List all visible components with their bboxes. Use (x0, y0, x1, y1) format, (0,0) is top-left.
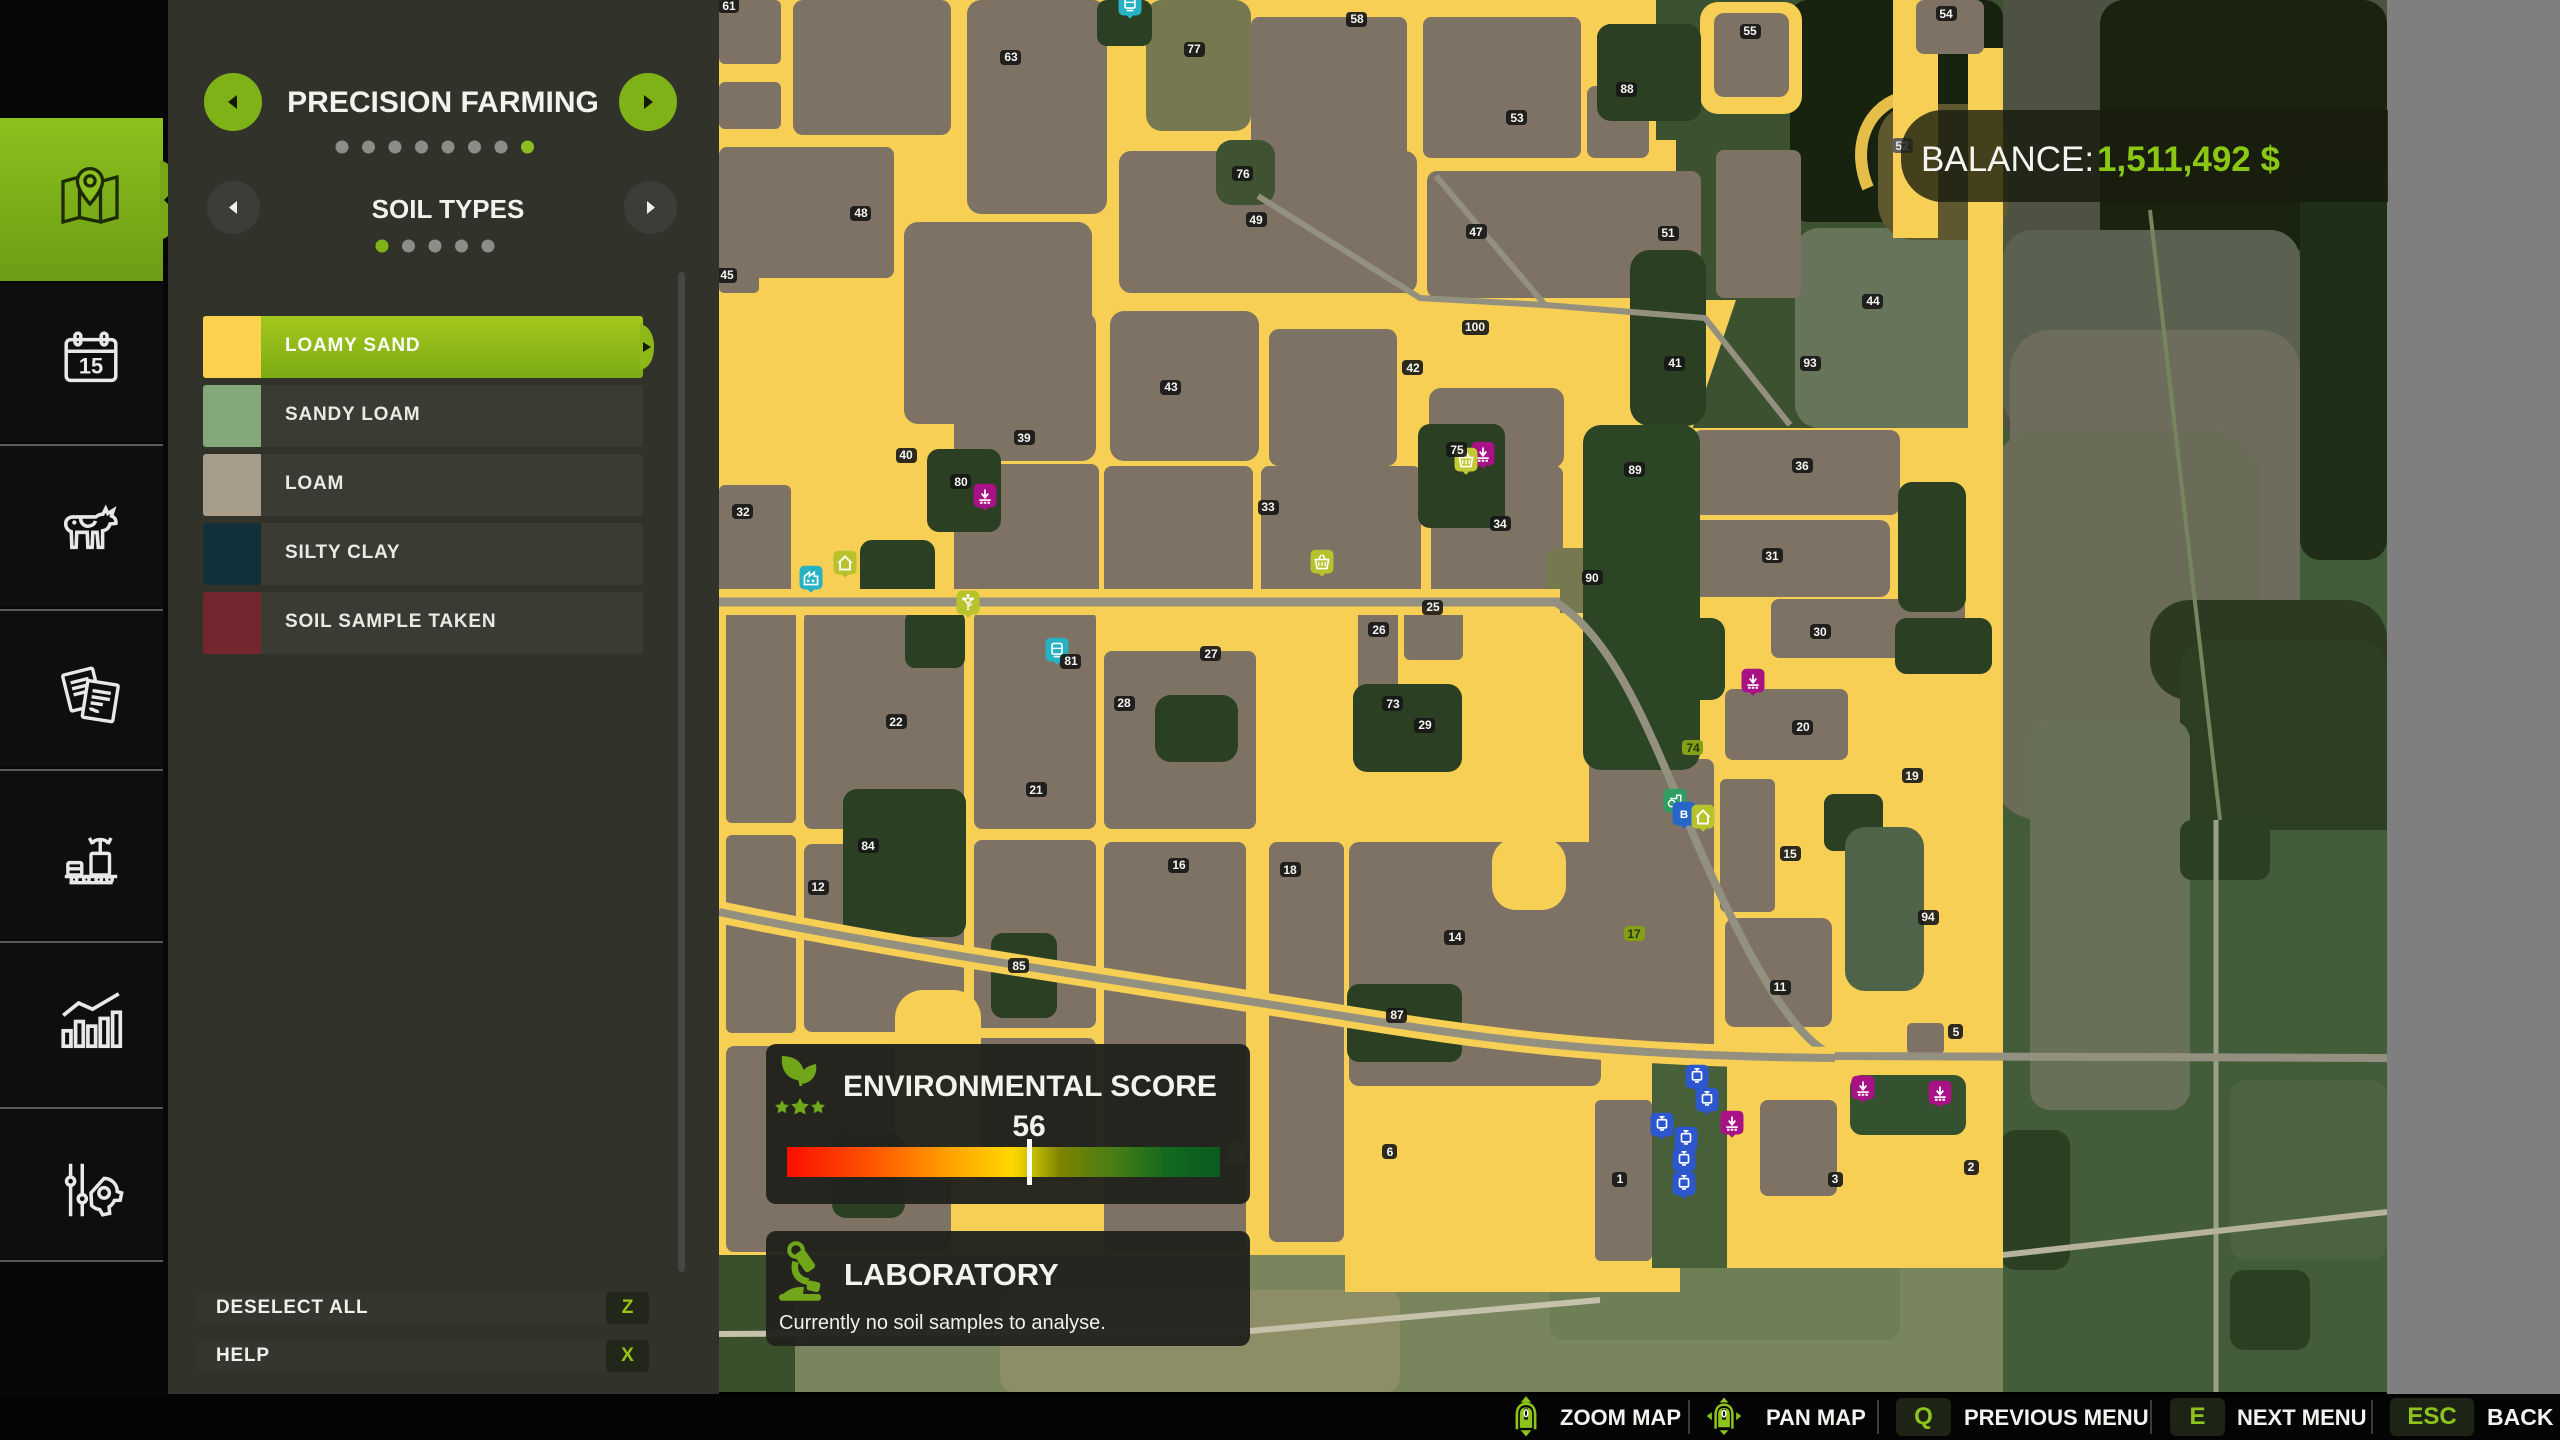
svg-text:22: 22 (889, 715, 903, 729)
svg-text:31: 31 (1765, 549, 1779, 563)
svg-text:26: 26 (1372, 623, 1386, 637)
svg-text:48: 48 (854, 206, 868, 220)
svg-text:45: 45 (720, 268, 734, 282)
svg-text:20: 20 (1796, 720, 1810, 734)
svg-text:39: 39 (1017, 431, 1031, 445)
svg-text:25: 25 (1426, 600, 1440, 614)
svg-text:84: 84 (861, 839, 875, 853)
svg-text:93: 93 (1803, 356, 1817, 370)
svg-text:61: 61 (722, 0, 736, 13)
svg-text:88: 88 (1620, 82, 1634, 96)
svg-text:81: 81 (1064, 654, 1078, 668)
svg-text:34: 34 (1493, 517, 1507, 531)
svg-text:28: 28 (1117, 696, 1131, 710)
svg-text:15: 15 (79, 353, 103, 378)
svg-text:32: 32 (736, 505, 750, 519)
svg-text:3: 3 (1832, 1172, 1839, 1186)
svg-text:47: 47 (1469, 225, 1483, 239)
svg-text:16: 16 (1172, 858, 1186, 872)
svg-text:94: 94 (1921, 910, 1935, 924)
svg-text:6: 6 (1387, 1145, 1394, 1159)
svg-text:18: 18 (1283, 863, 1297, 877)
svg-text:30: 30 (1813, 625, 1827, 639)
svg-text:33: 33 (1261, 500, 1275, 514)
svg-text:80: 80 (954, 475, 968, 489)
svg-text:53: 53 (1510, 111, 1524, 125)
svg-text:63: 63 (1004, 50, 1018, 64)
svg-text:54: 54 (1939, 7, 1953, 21)
svg-text:19: 19 (1905, 769, 1919, 783)
svg-text:17: 17 (1627, 927, 1641, 941)
svg-text:55: 55 (1743, 24, 1757, 38)
svg-text:43: 43 (1164, 380, 1178, 394)
svg-text:58: 58 (1350, 12, 1364, 26)
svg-text:74: 74 (1686, 741, 1700, 755)
svg-text:2: 2 (1968, 1160, 1975, 1174)
svg-text:87: 87 (1390, 1008, 1404, 1022)
svg-text:5: 5 (1953, 1025, 1960, 1039)
svg-text:89: 89 (1628, 463, 1642, 477)
svg-text:11: 11 (1774, 980, 1787, 994)
svg-text:41: 41 (1668, 356, 1682, 370)
svg-text:49: 49 (1249, 213, 1263, 227)
svg-text:29: 29 (1418, 718, 1432, 732)
svg-text:21: 21 (1029, 783, 1043, 797)
svg-text:85: 85 (1012, 959, 1026, 973)
svg-text:42: 42 (1406, 361, 1420, 375)
svg-text:12: 12 (811, 880, 825, 894)
svg-text:36: 36 (1795, 459, 1809, 473)
svg-text:B: B (1680, 809, 1688, 821)
svg-text:100: 100 (1465, 320, 1485, 334)
svg-text:14: 14 (1448, 930, 1462, 944)
svg-text:90: 90 (1585, 571, 1599, 585)
svg-text:27: 27 (1204, 647, 1218, 661)
svg-text:73: 73 (1386, 697, 1400, 711)
svg-text:51: 51 (1661, 226, 1675, 240)
svg-text:44: 44 (1866, 294, 1880, 308)
svg-text:1: 1 (1617, 1172, 1624, 1186)
svg-text:76: 76 (1236, 167, 1250, 181)
svg-text:75: 75 (1450, 443, 1464, 457)
svg-text:77: 77 (1187, 42, 1201, 56)
svg-text:15: 15 (1783, 847, 1797, 861)
svg-text:40: 40 (899, 448, 913, 462)
